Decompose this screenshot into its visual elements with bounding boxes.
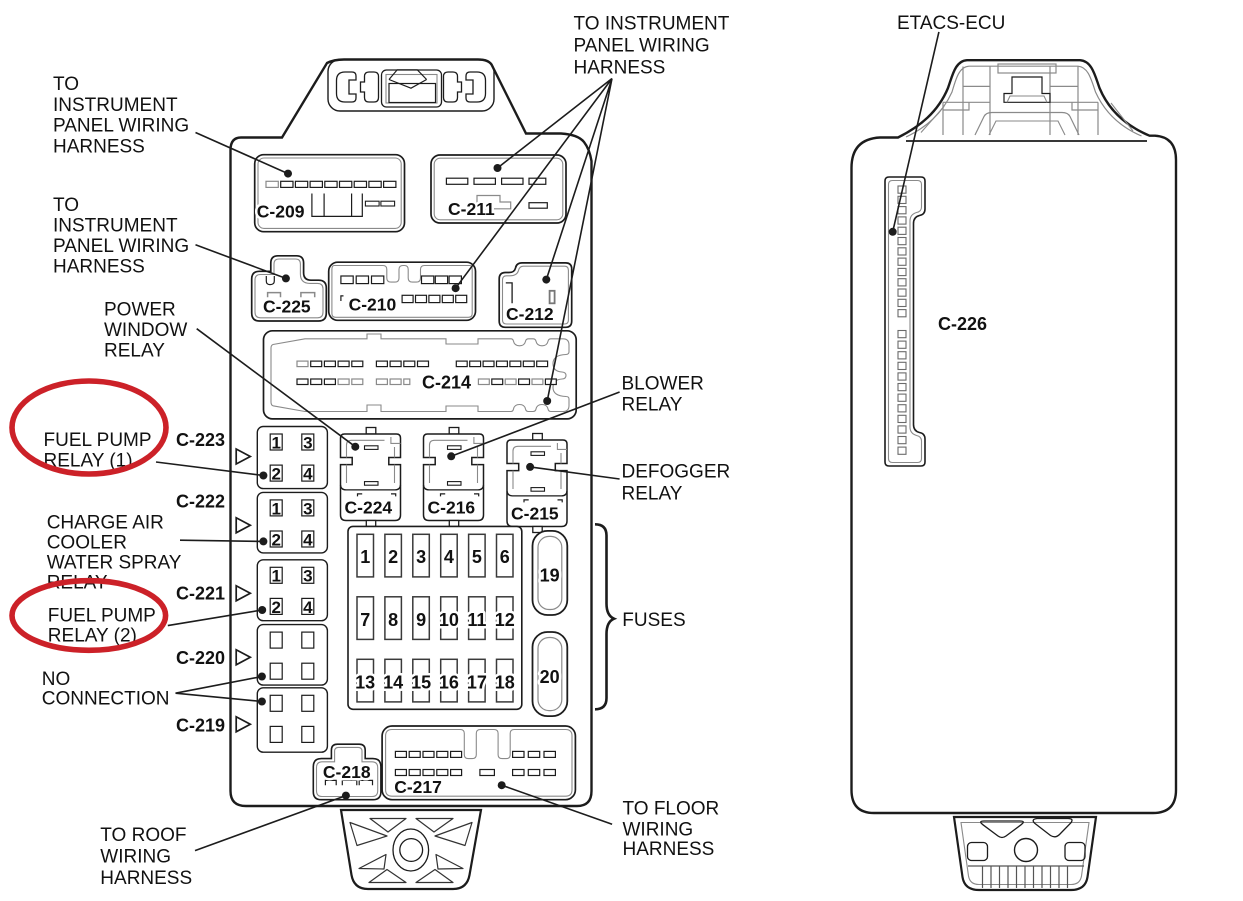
svg-text:16: 16: [439, 673, 459, 693]
svg-text:C-209: C-209: [257, 202, 305, 222]
svg-text:CHARGE AIR: CHARGE AIR: [47, 512, 164, 533]
svg-text:20: 20: [540, 667, 560, 687]
svg-text:9: 9: [416, 610, 426, 630]
svg-text:PANEL WIRING: PANEL WIRING: [53, 236, 189, 257]
svg-text:HARNESS: HARNESS: [53, 136, 145, 157]
svg-text:5: 5: [472, 547, 482, 567]
svg-text:1: 1: [271, 433, 280, 452]
svg-text:C-219: C-219: [176, 715, 225, 735]
svg-text:C-223: C-223: [176, 430, 225, 450]
svg-text:3: 3: [303, 499, 312, 518]
svg-text:4: 4: [303, 530, 313, 549]
svg-text:17: 17: [467, 673, 487, 693]
svg-text:NO: NO: [42, 669, 71, 690]
svg-text:C-211: C-211: [448, 199, 495, 219]
svg-text:2: 2: [271, 598, 280, 617]
svg-text:HARNESS: HARNESS: [53, 257, 145, 278]
svg-text:PANEL WIRING: PANEL WIRING: [53, 116, 189, 137]
svg-text:DEFOGGER: DEFOGGER: [622, 462, 731, 483]
svg-text:C-220: C-220: [176, 648, 225, 668]
svg-text:19: 19: [540, 566, 560, 586]
svg-text:FUEL PUMP: FUEL PUMP: [44, 430, 152, 451]
svg-text:C-212: C-212: [506, 304, 554, 324]
svg-text:RELAY (2): RELAY (2): [48, 626, 137, 647]
svg-text:C-217: C-217: [394, 777, 442, 797]
svg-text:WINDOW: WINDOW: [104, 320, 187, 341]
svg-text:RELAY: RELAY: [104, 341, 165, 362]
svg-text:1: 1: [271, 499, 280, 518]
svg-text:3: 3: [303, 433, 312, 452]
svg-text:C-222: C-222: [176, 491, 225, 511]
svg-text:TO: TO: [53, 74, 79, 95]
svg-text:C-216: C-216: [428, 498, 476, 518]
svg-text:RELAY: RELAY: [622, 483, 683, 504]
svg-text:WIRING: WIRING: [623, 819, 694, 840]
svg-text:C-218: C-218: [323, 762, 371, 782]
svg-text:8: 8: [388, 610, 398, 630]
svg-text:POWER: POWER: [104, 299, 176, 320]
svg-text:14: 14: [383, 673, 403, 693]
svg-text:7: 7: [360, 610, 370, 630]
svg-text:3: 3: [303, 567, 312, 586]
svg-text:C-221: C-221: [176, 584, 225, 604]
svg-text:2: 2: [271, 530, 280, 549]
svg-text:TO FLOOR: TO FLOOR: [623, 799, 720, 820]
svg-text:INSTRUMENT: INSTRUMENT: [53, 216, 178, 237]
svg-text:HARNESS: HARNESS: [574, 58, 666, 79]
svg-text:TO INSTRUMENT: TO INSTRUMENT: [574, 14, 730, 35]
svg-text:11: 11: [467, 610, 486, 630]
svg-text:3: 3: [416, 547, 426, 567]
svg-text:4: 4: [444, 547, 454, 567]
svg-text:13: 13: [355, 673, 375, 693]
svg-text:C-214: C-214: [422, 373, 471, 393]
svg-text:WIRING: WIRING: [100, 846, 171, 867]
svg-text:1: 1: [360, 547, 370, 567]
svg-text:18: 18: [495, 673, 515, 693]
svg-text:TO: TO: [53, 195, 79, 216]
svg-text:FUSES: FUSES: [622, 610, 685, 631]
svg-text:TO ROOF: TO ROOF: [100, 825, 186, 846]
svg-text:WATER SPRAY: WATER SPRAY: [47, 552, 182, 573]
svg-text:C-224: C-224: [345, 498, 393, 518]
svg-text:HARNESS: HARNESS: [100, 868, 192, 889]
svg-text:4: 4: [303, 598, 313, 617]
svg-text:CONNECTION: CONNECTION: [42, 688, 170, 709]
svg-text:C-226: C-226: [938, 314, 987, 334]
svg-text:COOLER: COOLER: [47, 532, 127, 553]
svg-text:2: 2: [388, 547, 398, 567]
svg-text:INSTRUMENT: INSTRUMENT: [53, 95, 178, 116]
svg-text:C-225: C-225: [263, 297, 311, 317]
svg-text:4: 4: [303, 465, 313, 484]
svg-text:HARNESS: HARNESS: [623, 839, 715, 860]
svg-text:PANEL WIRING: PANEL WIRING: [574, 36, 710, 57]
svg-text:2: 2: [271, 465, 280, 484]
svg-text:ETACS-ECU: ETACS-ECU: [897, 13, 1005, 34]
svg-text:10: 10: [439, 610, 459, 630]
svg-text:1: 1: [271, 567, 280, 586]
svg-text:6: 6: [500, 547, 510, 567]
svg-text:12: 12: [495, 610, 515, 630]
svg-text:C-215: C-215: [511, 504, 559, 524]
svg-text:RELAY: RELAY: [622, 395, 683, 416]
svg-text:FUEL PUMP: FUEL PUMP: [48, 606, 156, 627]
svg-text:C-210: C-210: [349, 295, 397, 315]
svg-text:15: 15: [411, 673, 431, 693]
svg-text:BLOWER: BLOWER: [622, 374, 704, 395]
